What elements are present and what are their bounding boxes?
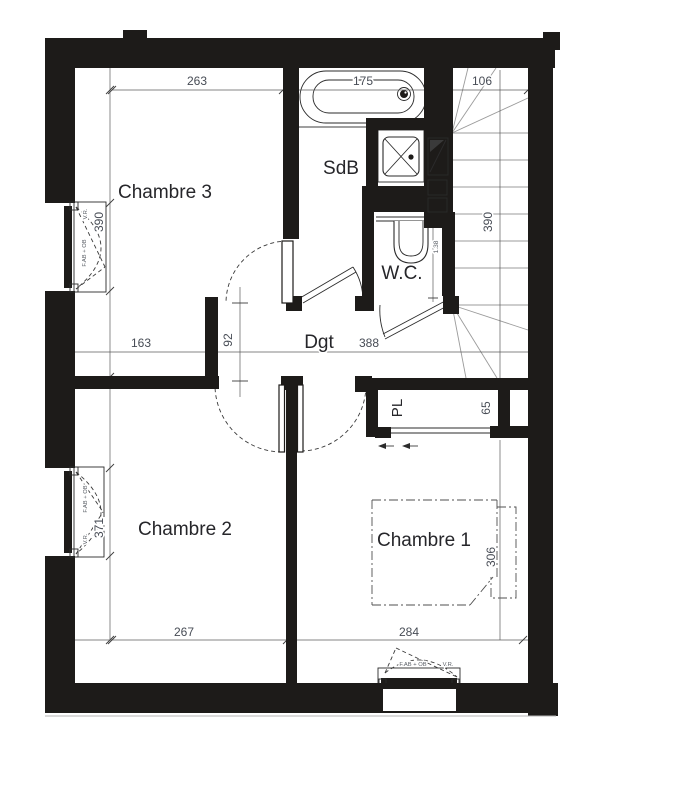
washbasin [378, 130, 424, 182]
door-leaf-wc [385, 305, 449, 339]
wall-top-notch [123, 30, 147, 39]
window2-type-label: F.AB + OB [83, 485, 89, 512]
dim-stairs-height: 390 [481, 212, 495, 232]
room-label-wc: W.C. [381, 263, 422, 284]
door-arc-chambre3 [226, 241, 288, 303]
door-arc-sdb [353, 267, 363, 301]
window3-type-label: F.AB + OB [399, 662, 426, 668]
room-label-sdb: SdB [323, 158, 359, 179]
dim-closet-depth: 65 [479, 401, 493, 415]
wall-hall-south-west [75, 376, 219, 389]
window2-shutter-label: V.R. [83, 533, 89, 544]
wall-closet-south-block-east [490, 426, 533, 438]
window-glazing-chambre2 [64, 471, 72, 553]
dim-hall-door: 92 [221, 333, 235, 347]
door-leaf-chambre2 [279, 385, 285, 452]
door-leaf-chambre3 [282, 241, 293, 303]
wall-chambre3-sdb [283, 66, 299, 239]
wall-bottom [45, 683, 555, 713]
dimension-lines [75, 68, 532, 644]
wall-left-middle [45, 291, 75, 468]
stair-winder-line [452, 68, 468, 133]
wall-top [45, 38, 555, 68]
dim-bath: 175 [353, 74, 373, 88]
door-leaf-chambre1 [298, 385, 304, 452]
floor-plan: Chambre 3 SdB W.C. Dgt PL Chambre 2 Cham… [0, 0, 693, 792]
window-glazing-chambre3 [64, 206, 72, 288]
bathtub-drain-highlight [404, 91, 406, 93]
wall-basin-nook-top [366, 118, 426, 130]
wall-wc-west [362, 208, 374, 311]
dim-wc-inner: 1.38 [433, 240, 440, 253]
dim-stairs-width: 106 [472, 74, 492, 88]
sliding-arrow-head [402, 443, 410, 449]
wall-closet-south-block-west [375, 427, 391, 438]
sliding-arrow-head [378, 443, 386, 449]
door-arc-wc [380, 305, 385, 337]
window-frame [74, 467, 104, 557]
wall-basin-nook-side [366, 130, 378, 186]
window-chambre2 [74, 467, 104, 557]
closet-sliding-doors [377, 428, 496, 449]
dim-ch3-width: 263 [187, 74, 207, 88]
window3-shutter-label: V.R. [443, 662, 454, 668]
dim-ch3-height: 390 [92, 212, 106, 232]
window1-type-label: F.AB + OB [82, 239, 88, 266]
washbasin-tap [408, 154, 413, 159]
dim-hall-left: 163 [131, 336, 151, 350]
dim-ch2-width: 267 [174, 625, 194, 639]
bottom-window-recess [383, 689, 456, 711]
wall-wc-north [362, 186, 452, 212]
dim-hall-length: 388 [359, 336, 379, 350]
window1-shutter-label: V.R. [83, 208, 89, 219]
door-leaf-wc [383, 300, 447, 334]
door-arc-chambre1 [301, 386, 366, 451]
floor-plan-drawing: Chambre 3 SdB W.C. Dgt PL Chambre 2 Cham… [0, 0, 693, 792]
wall-left-upper [45, 38, 75, 203]
room-label-dgt: Dgt [304, 332, 334, 353]
dim-ch1-height: 306 [484, 547, 498, 567]
bathtub-drain [400, 90, 408, 98]
door-leaf-sdb [303, 272, 356, 303]
room-label-chambre1: Chambre 1 [377, 530, 471, 551]
dim-ch2-height: 371 [92, 518, 106, 538]
window-casement-lines [76, 472, 103, 554]
door-arc-chambre2 [215, 385, 282, 452]
dim-ch1-width: 284 [399, 625, 419, 639]
wall-right [528, 38, 553, 713]
wall-chambre1-chambre2 [286, 383, 297, 683]
wall-chambre3-stub [205, 297, 218, 389]
door-leaf-sdb [300, 267, 353, 298]
room-label-chambre3: Chambre 3 [118, 182, 212, 203]
wall-stair-jamb [443, 296, 459, 314]
room-label-pl: PL [389, 399, 406, 417]
room-label-chambre2: Chambre 2 [138, 519, 232, 540]
stair-winder-line [452, 305, 528, 330]
wall-wc-east [442, 212, 455, 296]
